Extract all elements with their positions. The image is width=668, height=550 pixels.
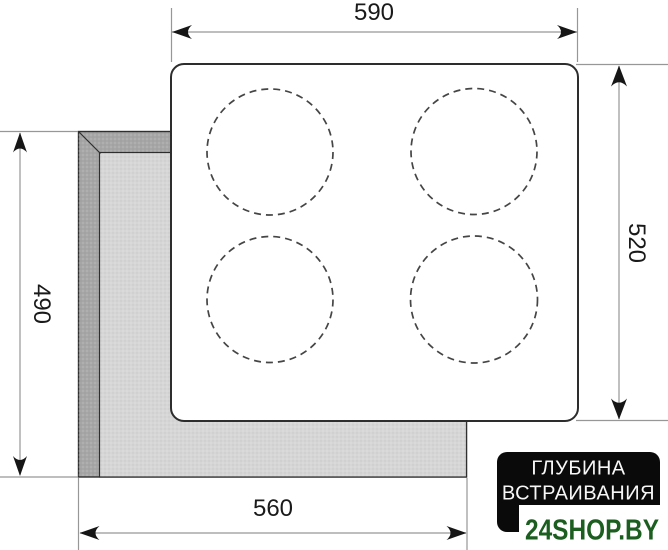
watermark-text: 24SHOP.BY bbox=[525, 515, 659, 547]
dim-label-bottom: 560 bbox=[253, 495, 293, 522]
watermark: 24SHOP.BY bbox=[519, 505, 668, 550]
dim-label-top: 590 bbox=[354, 0, 394, 26]
diagram-svg: 590 520 490 560 ГЛУБИНА ВСТРАИВАНИЯ 24SH… bbox=[0, 0, 668, 550]
cooktop-panel bbox=[171, 64, 578, 421]
dim-label-left: 490 bbox=[28, 284, 55, 324]
depth-badge-line1: ГЛУБИНА bbox=[531, 458, 625, 480]
dimension-right bbox=[576, 65, 668, 421]
cooktop-glass bbox=[171, 64, 578, 421]
depth-badge-line2: ВСТРАИВАНИЯ bbox=[502, 483, 655, 505]
dim-label-right: 520 bbox=[623, 223, 650, 263]
cooktop-dimension-diagram: 590 520 490 560 ГЛУБИНА ВСТРАИВАНИЯ 24SH… bbox=[0, 0, 668, 550]
